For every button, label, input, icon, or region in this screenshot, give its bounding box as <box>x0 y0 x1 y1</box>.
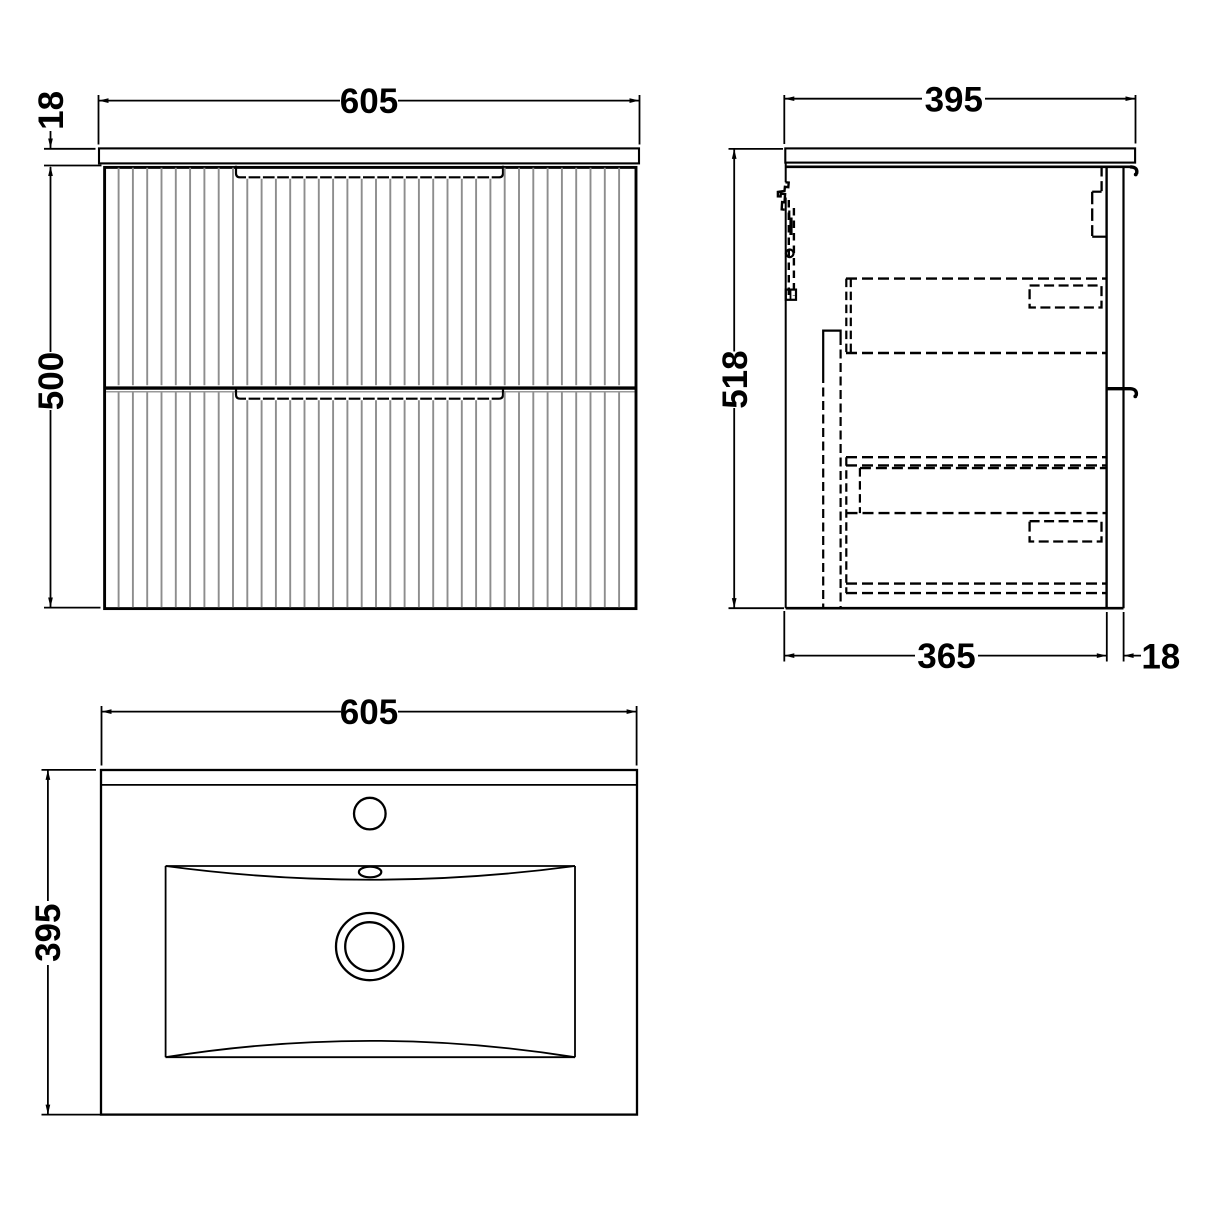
svg-text:395: 395 <box>29 903 68 961</box>
svg-text:18: 18 <box>1141 638 1180 677</box>
svg-text:500: 500 <box>32 352 71 410</box>
svg-text:395: 395 <box>925 80 983 119</box>
svg-text:605: 605 <box>340 693 398 732</box>
svg-text:605: 605 <box>340 82 398 121</box>
svg-text:18: 18 <box>32 91 71 130</box>
svg-text:518: 518 <box>716 350 755 408</box>
svg-text:365: 365 <box>917 637 975 676</box>
